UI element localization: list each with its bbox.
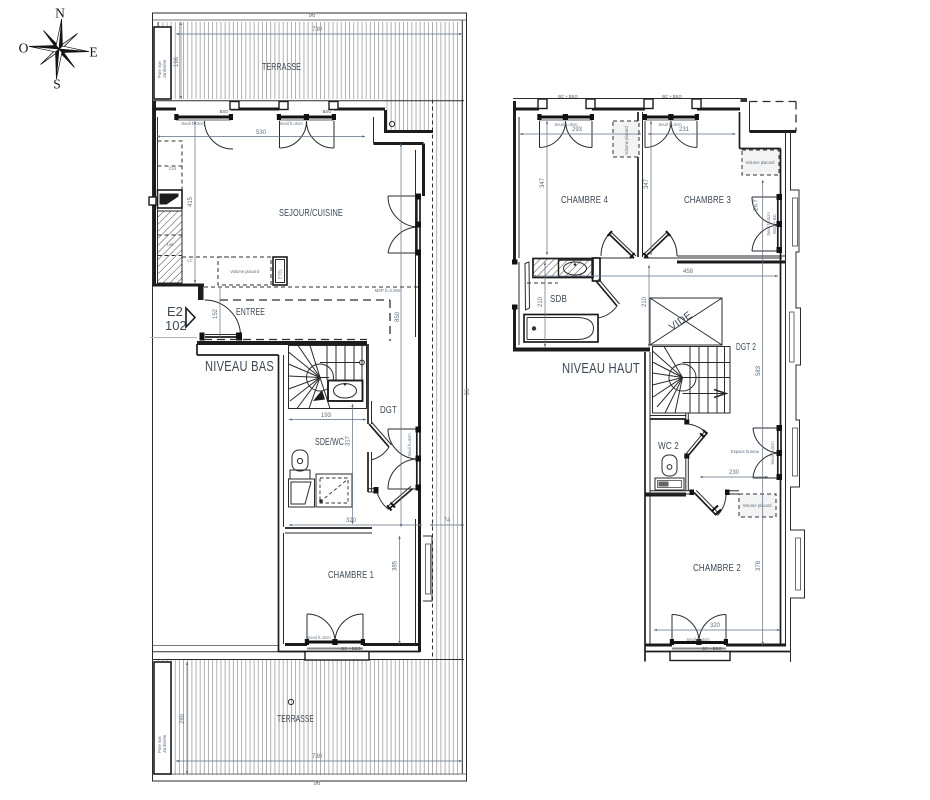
svg-text:Volume placard: Volume placard — [624, 125, 629, 155]
svg-text:96: 96 — [465, 388, 471, 395]
svg-text:NIVEAU BAS: NIVEAU BAS — [205, 359, 274, 375]
svg-text:458: 458 — [683, 269, 694, 275]
svg-text:26.7: 26.7 — [754, 199, 760, 211]
svg-text:210: 210 — [538, 296, 544, 307]
svg-text:74: 74 — [444, 518, 451, 524]
svg-text:96: 96 — [309, 13, 316, 19]
svg-text:293: 293 — [572, 127, 583, 133]
svg-text:Volume placard: Volume placard — [743, 503, 773, 508]
svg-text:Seuil h=3cm: Seuil h=3cm — [658, 122, 682, 127]
svg-text:320: 320 — [346, 518, 357, 524]
svg-text:850: 850 — [395, 311, 401, 322]
svg-text:SDE/WC: SDE/WC — [315, 436, 344, 448]
svg-text:Seuil h=3cm: Seuil h=3cm — [554, 122, 578, 127]
svg-text:BC + BSO: BC + BSO — [702, 646, 722, 651]
svg-text:Seuil h=3cm: Seuil h=3cm — [181, 121, 205, 126]
svg-text:TERRASSE: TERRASSE — [262, 61, 301, 73]
svg-text:NIVEAU HAUT: NIVEAU HAUT — [562, 361, 640, 377]
svg-text:VIDE: VIDE — [667, 309, 695, 333]
svg-text:Seuil h=3cm: Seuil h=3cm — [770, 441, 775, 465]
svg-text:CHAMBRE 4: CHAMBRE 4 — [561, 194, 608, 206]
svg-text:Volume placard: Volume placard — [746, 160, 776, 165]
svg-text:Seuil h=3cm: Seuil h=3cm — [279, 121, 303, 126]
svg-text:BC + BSO: BC + BSO — [662, 94, 682, 99]
svg-text:SDB: SDB — [550, 293, 567, 305]
svg-text:BC + BSO: BC + BSO — [558, 94, 578, 99]
svg-text:289: 289 — [180, 713, 186, 724]
svg-text:96: 96 — [314, 781, 321, 787]
svg-text:317: 317 — [346, 435, 352, 446]
svg-text:LM: LM — [167, 242, 173, 247]
svg-text:BC + BSO: BC + BSO — [341, 646, 361, 651]
svg-text:DGT 2: DGT 2 — [736, 341, 756, 353]
svg-text:347: 347 — [540, 177, 546, 188]
svg-text:Volume placard: Volume placard — [230, 269, 260, 274]
svg-text:LC: LC — [187, 258, 192, 263]
svg-text:Jardinière: Jardinière — [162, 734, 167, 753]
svg-text:CHAMBRE 3: CHAMBRE 3 — [684, 194, 731, 206]
svg-text:196: 196 — [174, 56, 180, 67]
svg-text:TERRASSE: TERRASSE — [277, 713, 314, 725]
svg-text:Espace bureau: Espace bureau — [731, 449, 760, 454]
svg-text:Jardinière: Jardinière — [162, 59, 167, 78]
svg-text:152: 152 — [213, 308, 219, 319]
svg-text:N: N — [55, 6, 65, 21]
svg-text:730: 730 — [312, 27, 323, 33]
svg-text:WC 2: WC 2 — [658, 440, 679, 452]
svg-text:193: 193 — [321, 413, 332, 419]
svg-text:385: 385 — [393, 560, 399, 571]
svg-text:Seuil h=3cm: Seuil h=3cm — [766, 212, 771, 236]
svg-text:CHAMBRE 1: CHAMBRE 1 — [328, 569, 374, 581]
svg-text:530: 530 — [256, 130, 267, 136]
svg-text:102: 102 — [165, 318, 187, 333]
svg-text:320: 320 — [710, 623, 721, 629]
svg-text:347: 347 — [644, 178, 650, 189]
svg-text:SEJOUR/CUISINE: SEJOUR/CUISINE — [279, 207, 343, 219]
svg-text:DGT: DGT — [380, 404, 397, 416]
svg-text:S: S — [53, 77, 61, 92]
svg-text:MSP h=2,95m: MSP h=2,95m — [375, 288, 402, 293]
svg-text:231: 231 — [679, 127, 690, 133]
svg-text:378: 378 — [756, 560, 762, 571]
svg-text:E2: E2 — [167, 304, 183, 319]
svg-text:Seuil h=3cm: Seuil h=3cm — [686, 637, 710, 642]
svg-text:210: 210 — [642, 296, 648, 307]
svg-text:ENTREE: ENTREE — [236, 306, 265, 318]
svg-text:230: 230 — [729, 470, 740, 476]
svg-text:415: 415 — [188, 196, 194, 207]
svg-text:Seuil h=3cm: Seuil h=3cm — [407, 433, 412, 457]
svg-text:CHAMBRE 2: CHAMBRE 2 — [693, 562, 741, 574]
svg-text:O: O — [19, 41, 29, 56]
svg-text:E: E — [89, 45, 97, 60]
svg-text:Seuil h=3cm: Seuil h=3cm — [307, 635, 331, 640]
svg-text:CUI: CUI — [169, 166, 176, 171]
svg-text:BSO: BSO — [323, 109, 333, 114]
svg-text:ETEL: ETEL — [278, 268, 283, 279]
svg-text:583: 583 — [756, 365, 762, 376]
svg-text:BSO: BSO — [220, 109, 230, 114]
svg-text:730: 730 — [312, 754, 323, 760]
svg-text:BSO + BC: BSO + BC — [772, 214, 777, 233]
